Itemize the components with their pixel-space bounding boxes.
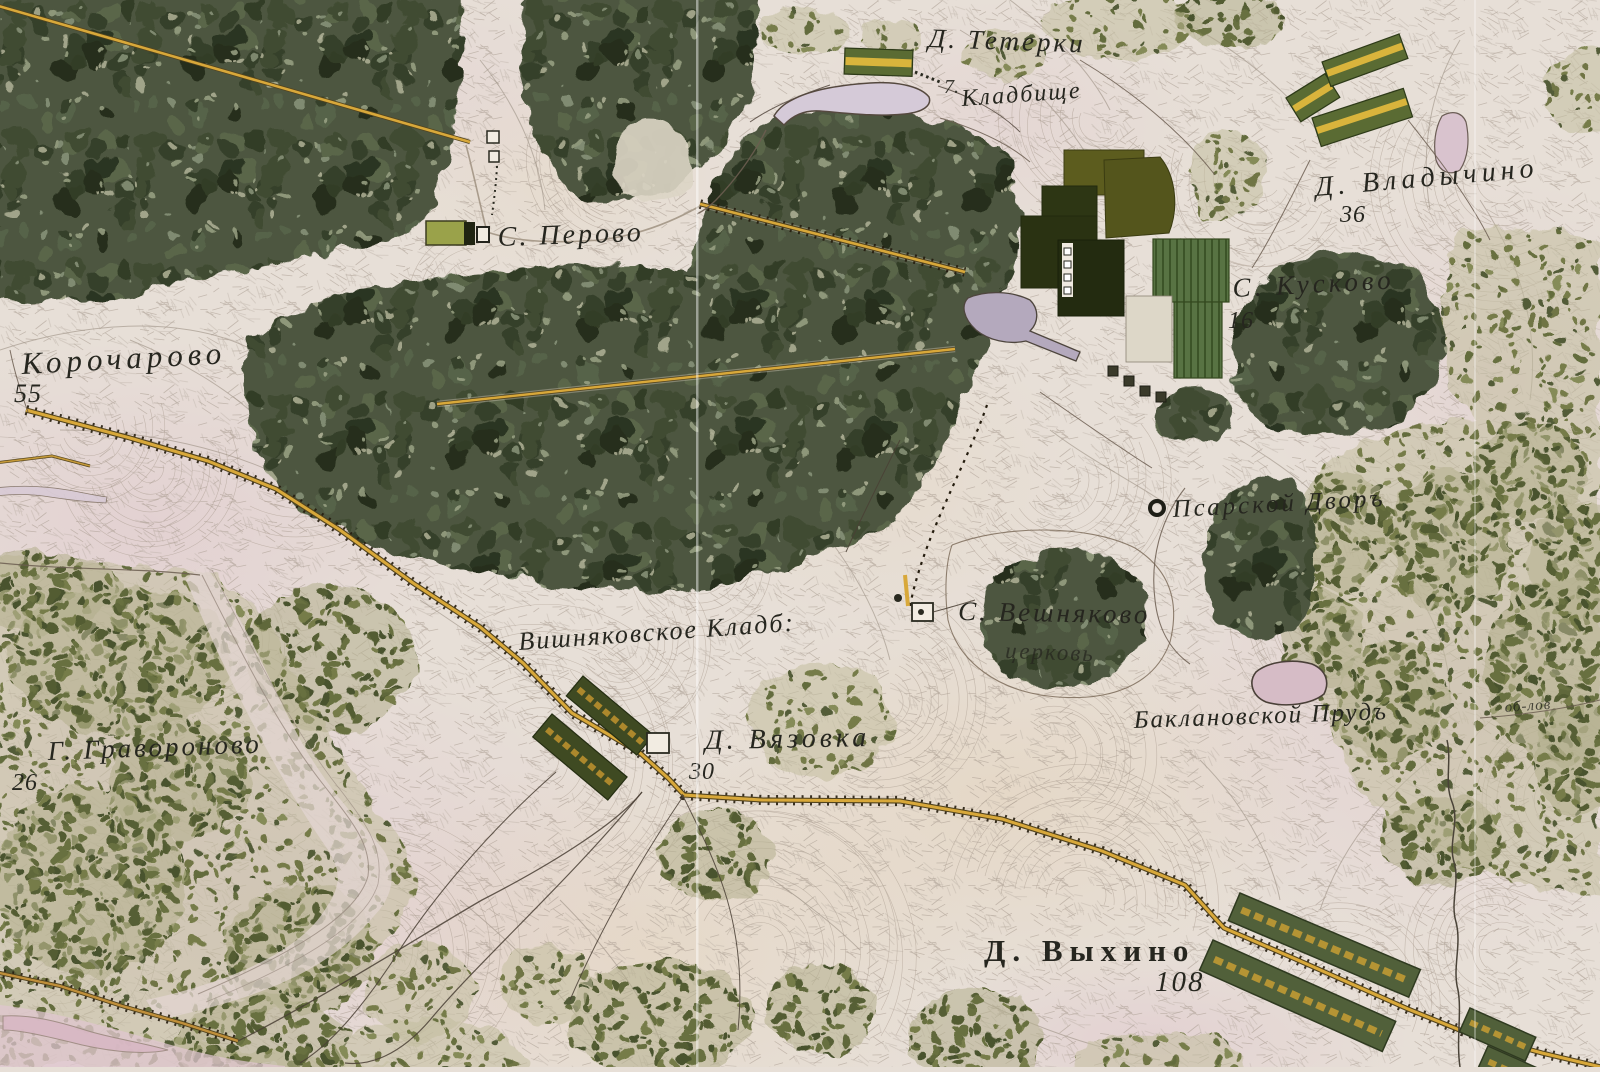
svg-text:108: 108: [1155, 966, 1205, 998]
svg-text:С. Вешняково: С. Вешняково: [958, 596, 1151, 629]
svg-text:об-лов: об-лов: [1504, 697, 1552, 716]
svg-text:Д. Вязовка: Д. Вязовка: [702, 722, 871, 756]
svg-text:Д. Тетерки: Д. Тетерки: [925, 23, 1086, 59]
svg-text:С. Перово: С. Перово: [497, 217, 644, 253]
svg-text:30: 30: [688, 759, 715, 785]
svg-text:36: 36: [1339, 202, 1366, 228]
svg-text:7.: 7.: [944, 76, 959, 98]
svg-text:26: 26: [12, 770, 38, 796]
svg-text:церковь: церковь: [1005, 638, 1095, 666]
svg-text:Д. Выхино: Д. Выхино: [984, 933, 1195, 968]
svg-text:55: 55: [14, 379, 42, 408]
svg-text:16: 16: [1228, 308, 1254, 334]
